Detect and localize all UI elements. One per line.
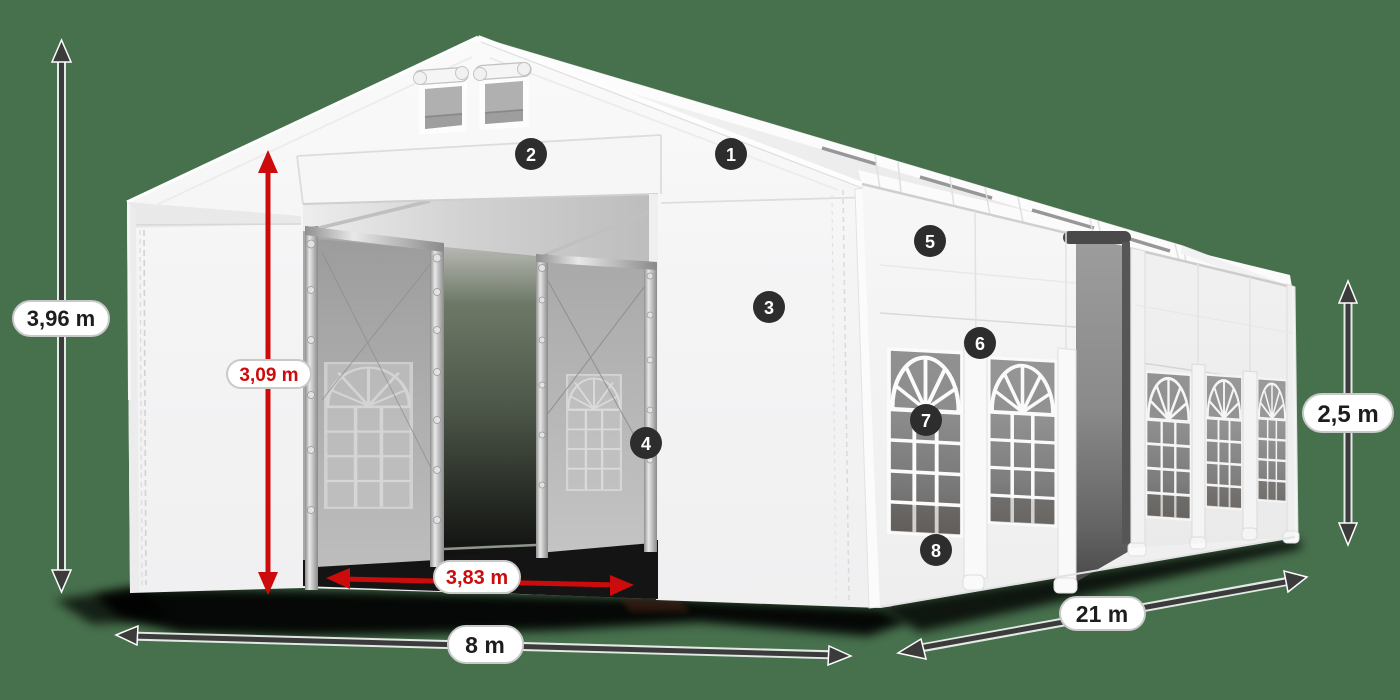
svg-text:21 m: 21 m — [1076, 601, 1128, 627]
svg-text:3,96 m: 3,96 m — [27, 306, 96, 331]
svg-text:3: 3 — [764, 298, 774, 318]
svg-text:7: 7 — [921, 411, 931, 431]
svg-text:8 m: 8 m — [465, 632, 505, 658]
svg-text:2,5 m: 2,5 m — [1317, 401, 1378, 428]
svg-text:8: 8 — [931, 541, 941, 561]
svg-text:4: 4 — [641, 434, 651, 454]
svg-text:1: 1 — [726, 145, 736, 165]
svg-text:3,83 m: 3,83 m — [446, 567, 508, 589]
svg-text:6: 6 — [975, 334, 985, 354]
svg-text:2: 2 — [526, 145, 536, 165]
svg-text:3,09 m: 3,09 m — [239, 365, 298, 386]
svg-text:5: 5 — [925, 232, 935, 252]
